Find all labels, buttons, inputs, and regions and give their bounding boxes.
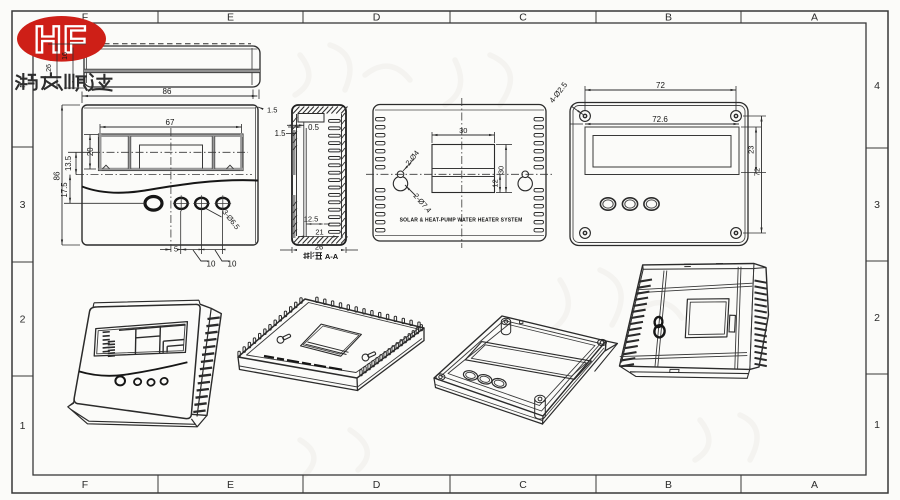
svg-text:C: C (519, 479, 527, 491)
svg-text:21: 21 (315, 228, 323, 237)
svg-text:86: 86 (53, 171, 62, 180)
svg-text:A: A (811, 12, 818, 24)
svg-text:F: F (82, 479, 88, 491)
svg-text:D: D (373, 12, 381, 24)
svg-text:26: 26 (46, 64, 53, 72)
svg-text:10: 10 (207, 260, 216, 269)
svg-text:23: 23 (747, 146, 756, 154)
svg-text:A-A: A-A (325, 252, 339, 261)
svg-text:30: 30 (459, 126, 467, 135)
svg-text:12.5: 12.5 (304, 215, 319, 224)
svg-text:E: E (227, 12, 234, 24)
svg-text:1: 1 (20, 420, 26, 432)
svg-text:20: 20 (86, 147, 95, 156)
svg-text:2: 2 (20, 314, 26, 326)
svg-text:86: 86 (163, 87, 172, 96)
svg-text:2: 2 (874, 312, 880, 324)
svg-text:26: 26 (315, 243, 323, 252)
svg-text:B: B (665, 12, 672, 24)
svg-text:5: 5 (174, 245, 178, 254)
svg-text:72: 72 (752, 168, 761, 176)
svg-text:1.5: 1.5 (267, 106, 277, 115)
svg-text:1: 1 (874, 419, 880, 431)
svg-text:3: 3 (20, 199, 26, 211)
svg-text:D: D (373, 479, 381, 491)
svg-text:HF: HF (34, 20, 88, 62)
svg-text:A: A (811, 479, 818, 491)
svg-text:0.5: 0.5 (308, 123, 320, 132)
svg-text:16: 16 (62, 52, 69, 60)
svg-text:3: 3 (874, 199, 880, 211)
svg-text:67: 67 (166, 118, 175, 127)
svg-text:72.6: 72.6 (652, 115, 668, 124)
svg-text:B: B (665, 479, 672, 491)
svg-text:SOLAR & HEAT-PUMP WATER HEATER: SOLAR & HEAT-PUMP WATER HEATER SYSTEM (400, 218, 523, 224)
svg-text:1.5: 1.5 (275, 129, 287, 138)
svg-text:17.5: 17.5 (60, 182, 69, 198)
svg-text:10: 10 (228, 260, 237, 269)
svg-text:12: 12 (491, 179, 500, 187)
svg-text:72: 72 (656, 81, 665, 90)
svg-text:C: C (519, 12, 527, 24)
svg-text:4: 4 (874, 80, 880, 92)
svg-text:13.5: 13.5 (64, 155, 73, 171)
svg-text:30: 30 (497, 166, 506, 174)
svg-text:E: E (227, 479, 234, 491)
